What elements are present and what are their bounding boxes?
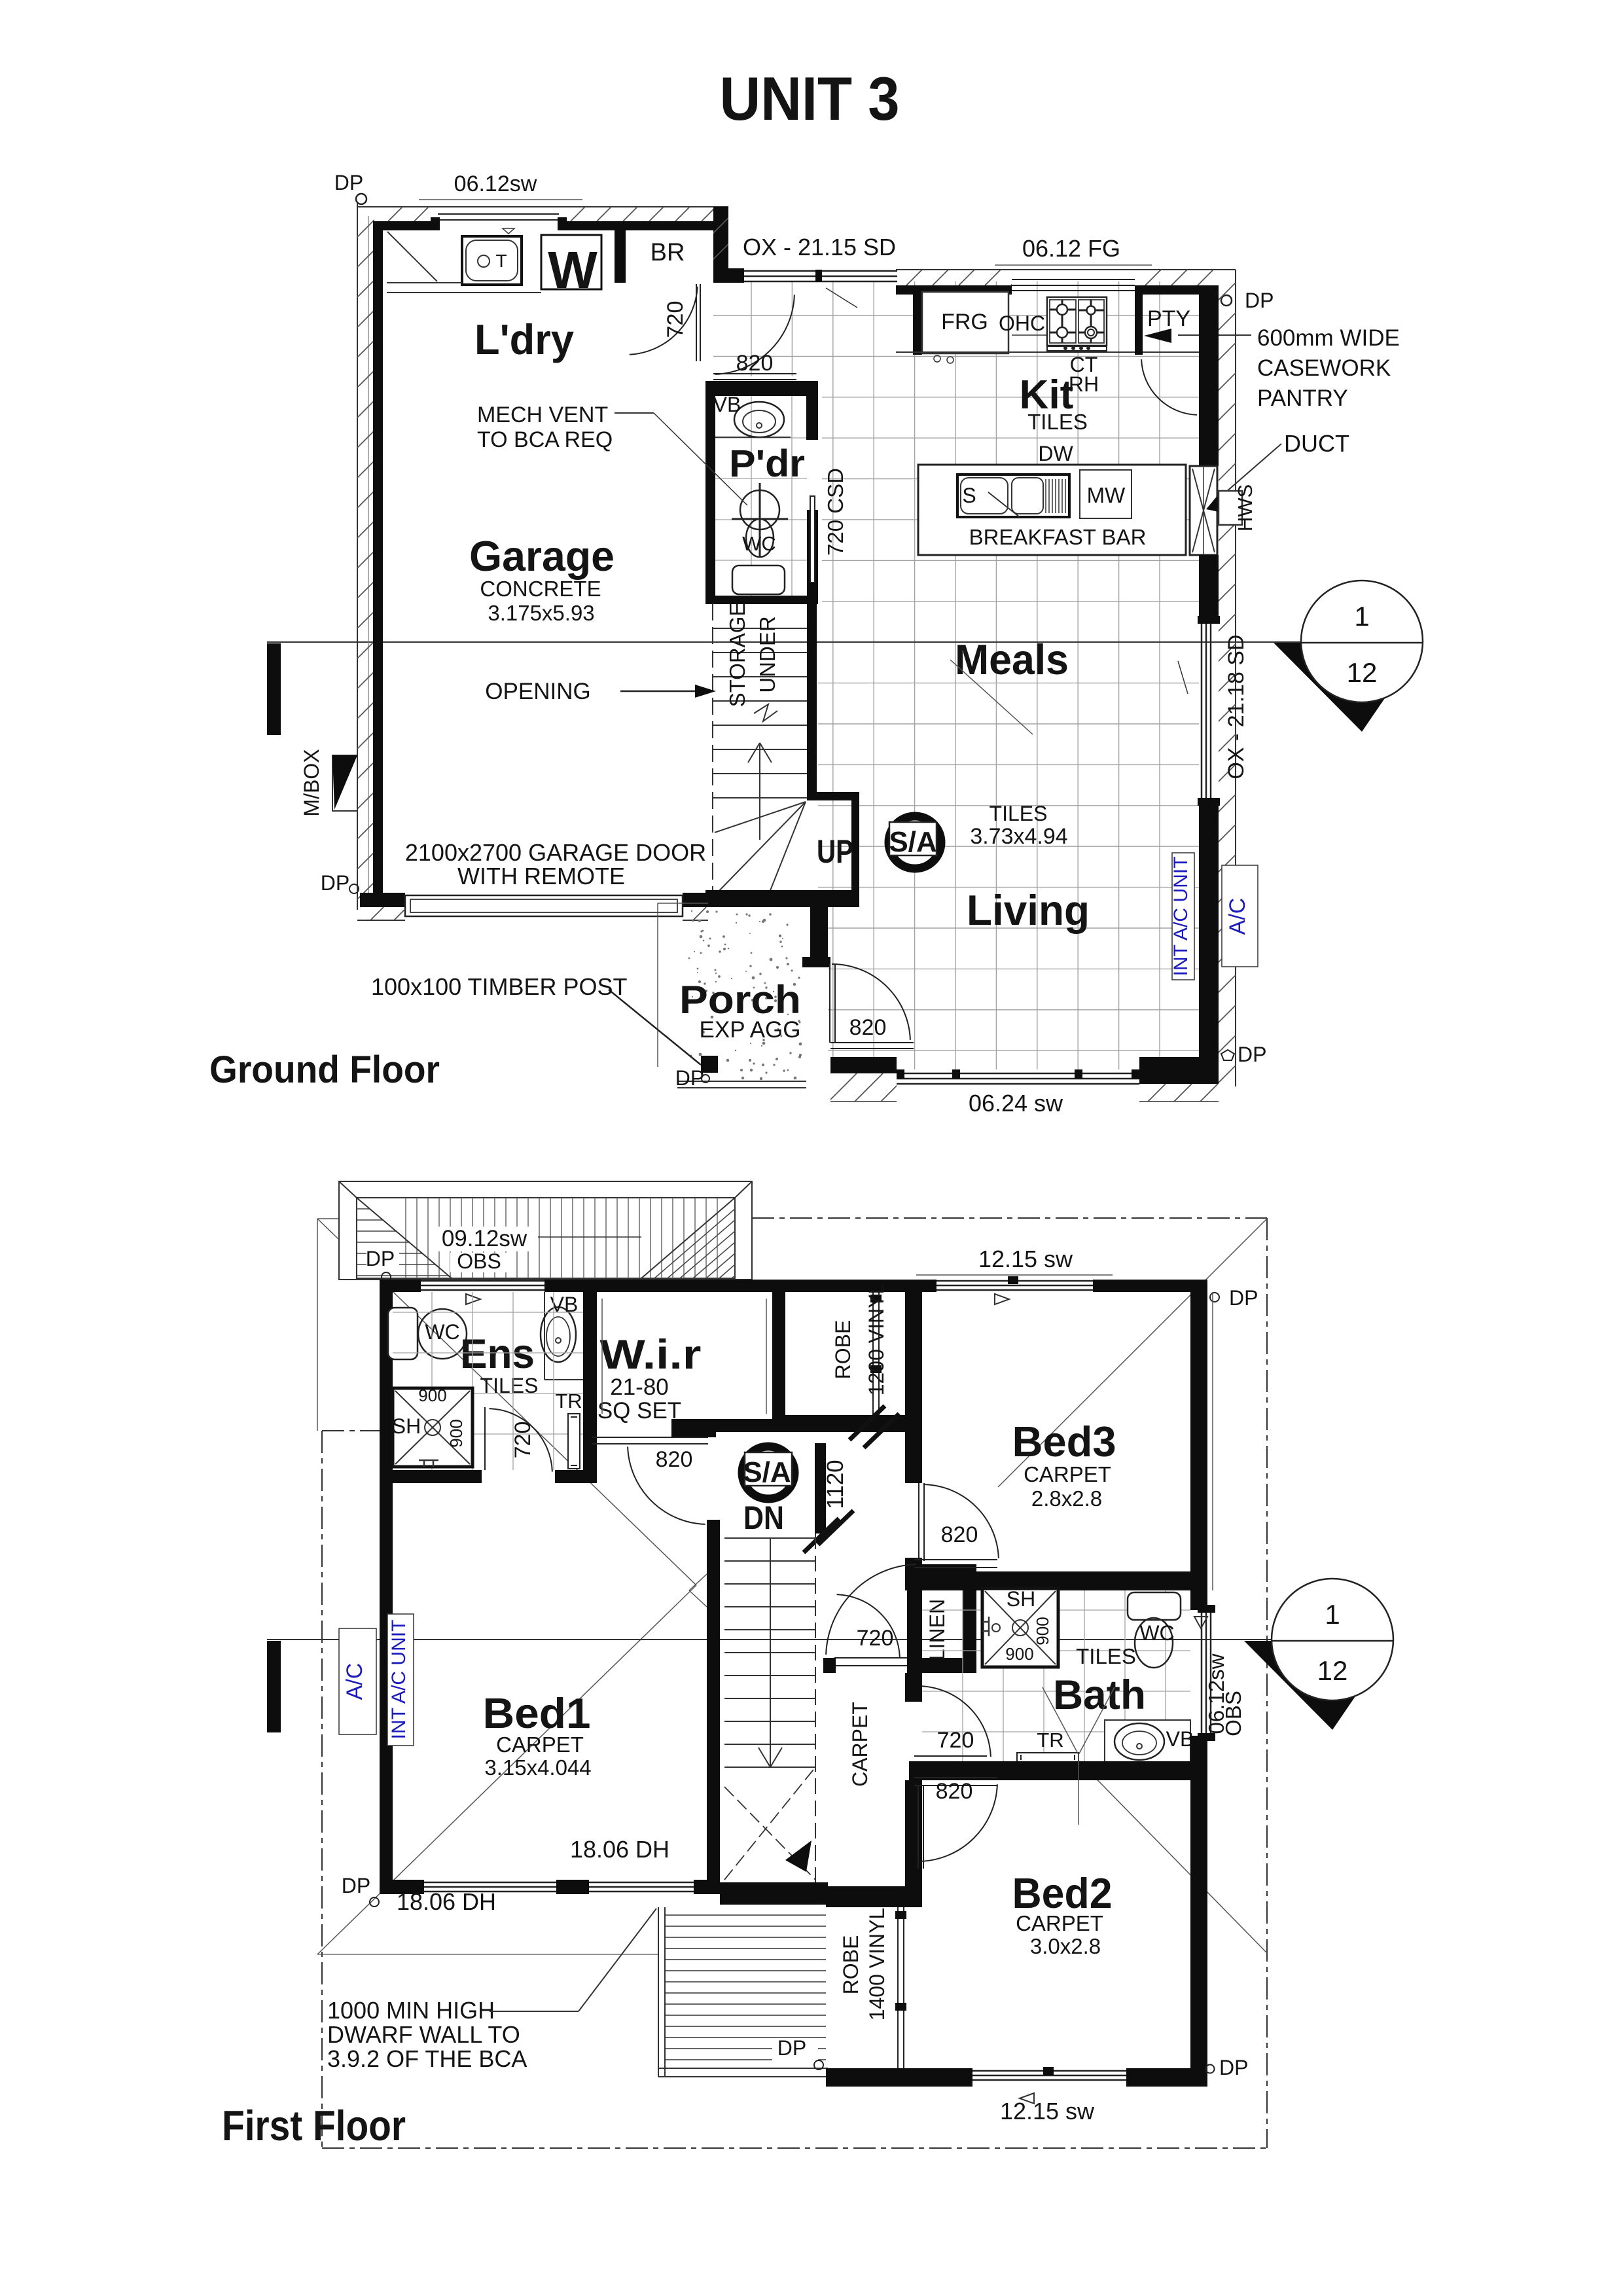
svg-text:S/A: S/A [889,826,936,858]
svg-text:720: 720 [510,1422,535,1459]
svg-text:DP: DP [675,1066,704,1090]
svg-text:Bed1: Bed1 [483,1689,591,1737]
svg-text:WC: WC [1139,1621,1174,1645]
svg-text:BREAKFAST BAR: BREAKFAST BAR [969,525,1147,549]
svg-text:CARPET: CARPET [496,1732,584,1757]
svg-text:900: 900 [446,1419,466,1447]
svg-text:12.15 sw: 12.15 sw [978,1246,1073,1272]
svg-text:3.15x4.044: 3.15x4.044 [484,1755,591,1780]
svg-text:3.73x4.94: 3.73x4.94 [970,824,1067,849]
svg-text:820: 820 [849,1015,887,1040]
svg-text:ROBE: ROBE [839,1935,863,1995]
svg-text:Ground Floor: Ground Floor [209,1049,440,1091]
svg-text:100x100 TIMBER POST: 100x100 TIMBER POST [371,973,628,1000]
svg-text:DP: DP [366,1247,395,1270]
svg-text:820: 820 [936,1779,973,1804]
svg-text:1200 VINYL: 1200 VINYL [865,1283,888,1396]
svg-text:820: 820 [736,351,774,376]
svg-text:WC: WC [425,1320,459,1344]
svg-text:Bath: Bath [1053,1672,1146,1718]
svg-text:UNDER: UNDER [755,616,779,692]
svg-text:DP: DP [334,171,363,194]
svg-text:Living: Living [967,886,1090,934]
svg-text:First Floor: First Floor [222,2102,406,2149]
svg-text:18.06 DH: 18.06 DH [570,1836,669,1863]
svg-text:VB: VB [1166,1727,1194,1751]
svg-text:MECH VENT: MECH VENT [477,403,608,427]
svg-text:OHC: OHC [999,312,1045,335]
svg-text:1120: 1120 [823,1460,848,1509]
svg-text:OPENING: OPENING [485,679,590,704]
svg-text:3.0x2.8: 3.0x2.8 [1030,1934,1101,1958]
svg-text:1: 1 [1354,601,1369,632]
svg-text:720 CSD: 720 CSD [823,468,847,556]
svg-text:DP: DP [1229,1286,1258,1310]
svg-text:TR: TR [555,1390,582,1412]
svg-text:ROBE: ROBE [831,1320,855,1380]
svg-text:STORAGE: STORAGE [725,602,749,708]
svg-text:2100x2700 GARAGE DOOR: 2100x2700 GARAGE DOOR [405,839,706,866]
svg-text:1: 1 [1325,1599,1340,1630]
svg-text:P'dr: P'dr [729,442,805,485]
svg-text:DP: DP [1245,289,1274,312]
svg-text:UP: UP [817,833,853,870]
svg-text:Meals: Meals [955,636,1069,683]
svg-text:Bed3: Bed3 [1012,1418,1116,1465]
svg-text:HWS: HWS [1234,484,1257,531]
svg-text:21-80: 21-80 [610,1374,669,1400]
svg-text:EXP AGG: EXP AGG [700,1017,801,1043]
svg-text:W.i.r: W.i.r [600,1332,702,1378]
svg-text:DP: DP [777,2036,806,2060]
svg-text:SH: SH [392,1414,421,1438]
svg-text:TILES: TILES [1027,410,1088,434]
svg-text:LINEN: LINEN [925,1599,949,1660]
svg-text:3.175x5.93: 3.175x5.93 [488,601,594,625]
svg-text:12.15 sw: 12.15 sw [1000,2098,1095,2125]
svg-text:S: S [962,484,976,507]
svg-text:INT A/C UNIT: INT A/C UNIT [388,1620,410,1740]
svg-text:SH: SH [1007,1587,1035,1611]
svg-text:A/C: A/C [1225,898,1250,935]
svg-text:OBS: OBS [457,1249,501,1273]
svg-text:DWARF WALL TO: DWARF WALL TO [327,2021,520,2048]
svg-text:UNIT 3: UNIT 3 [720,64,900,133]
svg-text:1000 MIN HIGH: 1000 MIN HIGH [327,1997,495,2024]
svg-text:BR: BR [651,239,685,266]
svg-text:900: 900 [418,1386,446,1405]
svg-text:1400 VINYL: 1400 VINYL [865,1908,889,2021]
svg-text:600mm WIDE: 600mm WIDE [1257,325,1400,351]
svg-text:18.06 DH: 18.06 DH [397,1888,496,1915]
svg-text:Bed2: Bed2 [1012,1869,1113,1917]
svg-text:DW: DW [1038,442,1073,465]
svg-text:820: 820 [941,1522,978,1547]
svg-text:09.12sw: 09.12sw [442,1226,527,1251]
svg-text:Garage: Garage [469,532,615,580]
svg-text:VB: VB [713,393,741,416]
svg-text:TR: TR [1037,1729,1063,1751]
svg-text:W: W [548,241,597,299]
svg-text:SQ SET: SQ SET [597,1398,681,1424]
svg-text:900: 900 [1033,1617,1052,1645]
svg-text:A/C: A/C [342,1663,367,1700]
svg-text:06.12 FG: 06.12 FG [1022,235,1120,262]
svg-text:DP: DP [321,871,349,895]
svg-text:CASEWORK: CASEWORK [1257,355,1391,381]
svg-text:DUCT: DUCT [1284,430,1349,457]
svg-text:2.8x2.8: 2.8x2.8 [1031,1486,1102,1511]
svg-text:DN: DN [743,1499,784,1536]
svg-text:DP: DP [342,1874,370,1897]
svg-text:820: 820 [656,1447,693,1472]
svg-text:CARPET: CARPET [1024,1462,1111,1486]
svg-text:06.24 sw: 06.24 sw [969,1090,1063,1117]
svg-text:DP: DP [1219,2056,1248,2079]
svg-text:720: 720 [663,301,688,338]
svg-text:PANTRY: PANTRY [1257,386,1348,411]
svg-text:T: T [495,251,507,271]
svg-text:TO BCA REQ: TO BCA REQ [477,427,613,452]
svg-text:06.12sw: 06.12sw [454,171,537,196]
svg-text:CONCRETE: CONCRETE [480,577,601,601]
svg-text:TILES: TILES [1076,1644,1136,1668]
svg-text:M/BOX: M/BOX [300,749,323,816]
svg-text:S/A: S/A [743,1456,791,1488]
svg-text:MW: MW [1087,483,1126,507]
svg-text:DP: DP [1238,1043,1266,1066]
svg-text:FRG: FRG [941,310,988,334]
svg-text:12: 12 [1317,1655,1348,1686]
svg-text:720: 720 [857,1626,894,1651]
svg-text:Porch: Porch [679,978,801,1022]
svg-text:L'dry: L'dry [474,315,574,363]
svg-text:WC: WC [742,532,776,555]
svg-text:CARPET: CARPET [1016,1911,1103,1935]
svg-text:Ens: Ens [460,1331,535,1377]
svg-text:PTY: PTY [1147,306,1190,331]
svg-text:OX - 21.15 SD: OX - 21.15 SD [743,234,896,260]
svg-text:OX - 21.18 SD: OX - 21.18 SD [1224,634,1249,779]
svg-text:INT A/C UNIT: INT A/C UNIT [1170,857,1192,977]
svg-text:WITH REMOTE: WITH REMOTE [457,863,625,889]
svg-text:900: 900 [1005,1644,1033,1664]
svg-text:TILES: TILES [990,802,1048,825]
svg-text:720: 720 [937,1728,974,1753]
svg-text:CARPET: CARPET [848,1702,872,1787]
svg-text:3.9.2 OF THE BCA: 3.9.2 OF THE BCA [327,2045,527,2072]
svg-text:OBS: OBS [1221,1691,1245,1736]
svg-text:12: 12 [1347,657,1378,688]
